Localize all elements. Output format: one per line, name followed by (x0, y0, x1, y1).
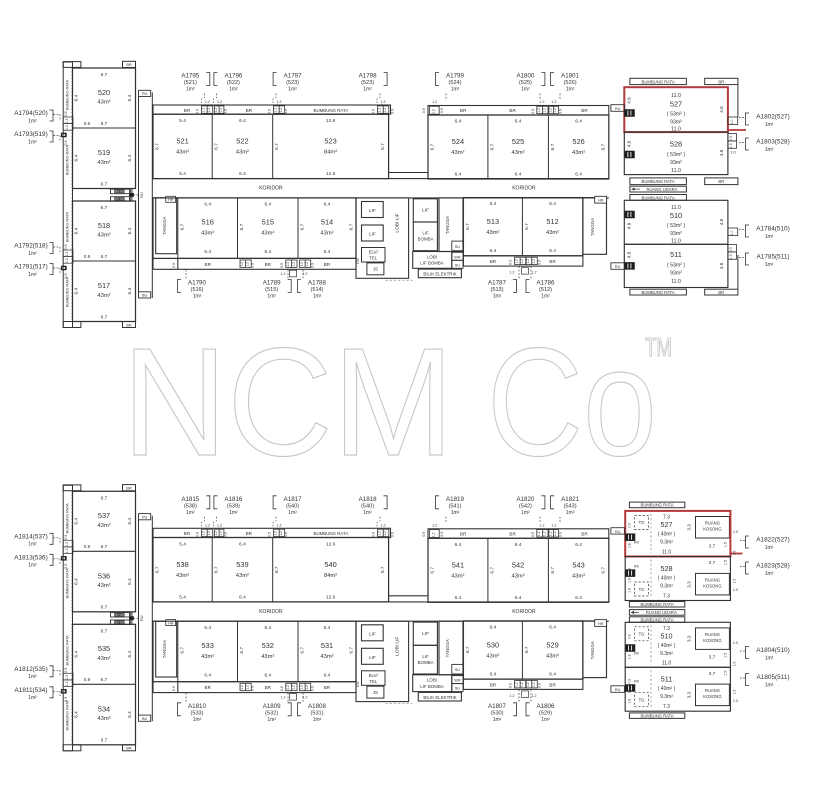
svg-text:6.4: 6.4 (264, 625, 271, 631)
svg-text:6.7: 6.7 (465, 646, 471, 653)
svg-text:1.2: 1.2 (432, 100, 437, 104)
svg-text:43m²: 43m² (451, 150, 464, 156)
svg-text:0.9: 0.9 (64, 697, 68, 702)
svg-text:1.2: 1.2 (553, 108, 557, 113)
svg-text:BILIK ELEKTRIK: BILIK ELEKTRIK (423, 272, 456, 277)
svg-text:TEL: TEL (369, 679, 378, 684)
svg-text:(515): (515) (265, 287, 278, 293)
svg-text:LIF: LIF (369, 655, 376, 661)
svg-text:1.2: 1.2 (542, 531, 546, 536)
svg-text:WR: WR (454, 255, 461, 259)
svg-text:1m²: 1m² (765, 262, 774, 268)
svg-text:1m²: 1m² (541, 294, 550, 300)
svg-text:Co: Co (487, 316, 657, 488)
svg-text:A1813(536): A1813(536) (14, 554, 47, 561)
svg-text:6.7: 6.7 (214, 143, 220, 150)
svg-text:512: 512 (546, 217, 558, 226)
svg-text:4.8: 4.8 (627, 97, 632, 104)
svg-text:43m²: 43m² (201, 231, 214, 237)
svg-text:1m²: 1m² (765, 122, 774, 128)
svg-text:43m²: 43m² (486, 230, 499, 236)
svg-text:524: 524 (452, 137, 464, 146)
svg-text:5.4: 5.4 (179, 594, 186, 600)
svg-text:A1809: A1809 (263, 703, 281, 710)
svg-text:(540): (540) (361, 503, 374, 509)
svg-text:43m²: 43m² (97, 233, 110, 239)
svg-text:11.0: 11.0 (671, 93, 681, 99)
svg-text:1.2: 1.2 (291, 262, 295, 267)
svg-text:1m²: 1m² (765, 682, 774, 688)
svg-text:525: 525 (512, 137, 524, 146)
svg-text:6.7: 6.7 (101, 72, 108, 78)
svg-text:BUMBUNG RATA: BUMBUNG RATA (642, 195, 675, 200)
svg-text:6.4: 6.4 (324, 249, 331, 255)
svg-text:536: 536 (98, 571, 110, 580)
svg-text:4.8: 4.8 (719, 149, 724, 156)
svg-text:1.0: 1.0 (730, 150, 736, 155)
svg-text:1.2: 1.2 (515, 682, 519, 687)
svg-text:1.2: 1.2 (378, 108, 382, 113)
svg-text:6.4: 6.4 (127, 578, 133, 585)
svg-text:6.7: 6.7 (101, 544, 108, 550)
svg-text:BR: BR (246, 108, 253, 113)
svg-text:43m²: 43m² (176, 150, 189, 156)
svg-text:RUANG: RUANG (705, 578, 720, 583)
svg-text:0.9: 0.9 (422, 532, 426, 537)
svg-text:A1817: A1817 (284, 496, 302, 503)
svg-text:1.2: 1.2 (552, 523, 557, 527)
svg-text:6.4: 6.4 (575, 172, 582, 178)
svg-text:531: 531 (321, 641, 333, 650)
svg-text:6.4: 6.4 (127, 518, 133, 525)
svg-text:6.7: 6.7 (155, 143, 161, 150)
svg-text:1m²: 1m² (193, 717, 202, 723)
svg-text:LIF BOMBA: LIF BOMBA (420, 684, 443, 689)
svg-text:6.4: 6.4 (515, 595, 522, 601)
svg-text:( 53m² ): ( 53m² ) (667, 152, 685, 158)
svg-text:1.5: 1.5 (724, 560, 728, 565)
svg-text:1.5: 1.5 (729, 247, 733, 252)
svg-text:6.4: 6.4 (74, 227, 80, 234)
svg-text:6.4: 6.4 (239, 118, 246, 124)
svg-text:0.9: 0.9 (628, 634, 632, 639)
svg-text:1.2: 1.2 (205, 100, 210, 104)
svg-text:3.3: 3.3 (687, 581, 692, 588)
svg-text:(541): (541) (448, 503, 461, 509)
svg-text:6.4: 6.4 (455, 119, 462, 125)
svg-text:1m²: 1m² (267, 717, 276, 723)
svg-text:1.2: 1.2 (305, 262, 309, 267)
svg-text:0.9: 0.9 (64, 274, 68, 279)
svg-text:11.0: 11.0 (671, 239, 681, 245)
svg-text:6.7: 6.7 (550, 143, 556, 150)
svg-text:1m²: 1m² (229, 510, 238, 516)
svg-text:542: 542 (512, 560, 524, 569)
svg-text:1.2: 1.2 (279, 108, 283, 113)
svg-text:BUMBUNG RATA: BUMBUNG RATA (641, 713, 674, 718)
svg-text:(539): (539) (227, 503, 240, 509)
svg-text:A1808: A1808 (308, 703, 326, 710)
svg-text:6.7: 6.7 (179, 223, 185, 230)
svg-text:1.2: 1.2 (432, 109, 436, 114)
svg-text:1.2: 1.2 (207, 108, 211, 113)
svg-text:93m²: 93m² (670, 160, 682, 166)
svg-text:1.2: 1.2 (381, 523, 386, 527)
svg-text:7.3: 7.3 (663, 594, 670, 600)
svg-text:1.2: 1.2 (217, 100, 222, 104)
svg-text:0.9: 0.9 (440, 108, 444, 113)
svg-text:43m²: 43m² (176, 573, 189, 579)
svg-text:1m²: 1m² (451, 510, 460, 516)
svg-text:KOSONG: KOSONG (703, 694, 721, 699)
svg-text:43m²: 43m² (97, 583, 110, 589)
svg-text:1.2: 1.2 (548, 108, 552, 113)
svg-text:BILIK ELEKTRIK: BILIK ELEKTRIK (423, 695, 456, 700)
svg-text:1m²: 1m² (521, 510, 530, 516)
svg-text:BUMBUNG RATA: BUMBUNG RATA (65, 277, 69, 307)
svg-text:BUMBUNG RATA: BUMBUNG RATA (65, 568, 69, 598)
svg-text:0.9: 0.9 (84, 121, 91, 126)
svg-text:1m²: 1m² (28, 695, 37, 701)
svg-text:3.3: 3.3 (687, 692, 692, 699)
svg-text:1.2: 1.2 (540, 523, 545, 527)
svg-text:520: 520 (98, 88, 110, 97)
svg-text:11.0: 11.0 (662, 661, 672, 667)
svg-text:6.4: 6.4 (324, 672, 331, 678)
svg-text:(524): (524) (448, 80, 461, 86)
svg-text:1m²: 1m² (28, 272, 37, 278)
svg-text:43m²: 43m² (511, 573, 524, 579)
svg-text:A1803(528): A1803(528) (756, 139, 789, 146)
svg-text:LIF BOMBA: LIF BOMBA (420, 261, 443, 266)
svg-text:1.2: 1.2 (383, 531, 387, 536)
svg-text:1.2: 1.2 (214, 108, 218, 113)
svg-text:43m²: 43m² (546, 653, 559, 659)
svg-text:BR: BR (549, 259, 556, 264)
svg-text:43m²: 43m² (572, 573, 585, 579)
svg-text:1.2: 1.2 (277, 523, 282, 527)
svg-text:A1794(520): A1794(520) (14, 110, 47, 117)
svg-text:43m²: 43m² (320, 231, 333, 237)
svg-text:LIF: LIF (369, 208, 376, 214)
svg-text:A1804(510): A1804(510) (756, 647, 789, 654)
svg-text:6.4: 6.4 (127, 711, 133, 718)
svg-text:A1816: A1816 (224, 496, 242, 503)
svg-text:6.7: 6.7 (274, 143, 280, 150)
svg-text:A1815: A1815 (181, 496, 199, 503)
svg-text:43m²: 43m² (486, 653, 499, 659)
svg-text:A1807: A1807 (488, 703, 506, 710)
svg-text:NCM: NCM (122, 316, 454, 488)
svg-text:A1822(527): A1822(527) (756, 537, 789, 544)
svg-text:1m²: 1m² (267, 294, 276, 300)
svg-text:1m²: 1m² (566, 87, 575, 93)
svg-text:A1821: A1821 (561, 496, 579, 503)
svg-text:1m²: 1m² (28, 118, 37, 124)
svg-text:1.2: 1.2 (510, 694, 515, 698)
svg-text:1.2: 1.2 (532, 682, 536, 687)
svg-text:1.2: 1.2 (65, 258, 69, 263)
svg-text:RUANG: RUANG (705, 632, 720, 637)
svg-text:BR: BR (509, 531, 516, 536)
svg-text:6.7: 6.7 (274, 566, 280, 573)
svg-text:CW: CW (356, 257, 360, 263)
svg-text:43m²: 43m² (97, 523, 110, 529)
svg-text:511: 511 (670, 250, 682, 259)
svg-text:BR: BR (460, 531, 467, 536)
svg-text:( 40m² ): ( 40m² ) (658, 532, 676, 538)
svg-text:TG: TG (639, 631, 645, 636)
svg-text:1m²: 1m² (28, 139, 37, 145)
svg-text:A1796: A1796 (224, 73, 242, 80)
svg-text:1.2: 1.2 (281, 695, 286, 699)
svg-text:6.4: 6.4 (455, 595, 462, 601)
svg-text:6.7: 6.7 (155, 566, 161, 573)
svg-text:1m²: 1m² (521, 87, 530, 93)
svg-text:3.7: 3.7 (709, 654, 716, 660)
svg-text:6.7: 6.7 (214, 566, 220, 573)
svg-text:1.8: 1.8 (628, 543, 632, 548)
svg-text:6.4: 6.4 (127, 94, 133, 101)
svg-text:538: 538 (176, 560, 188, 569)
svg-text:1.3: 1.3 (729, 143, 733, 148)
svg-text:6.7: 6.7 (430, 567, 436, 574)
svg-text:6.4: 6.4 (74, 518, 80, 525)
svg-text:BR: BR (205, 685, 212, 690)
svg-text:1m²: 1m² (28, 251, 37, 257)
svg-text:(538): (538) (184, 503, 197, 509)
svg-text:RU: RU (615, 107, 621, 111)
svg-text:6.7: 6.7 (101, 254, 108, 260)
svg-text:1.8: 1.8 (628, 654, 632, 659)
svg-text:3.7: 3.7 (709, 671, 716, 677)
svg-text:6.7: 6.7 (430, 143, 436, 150)
svg-text:BR: BR (184, 531, 191, 536)
svg-text:43m²: 43m² (97, 100, 110, 106)
svg-text:JS: JS (373, 690, 378, 695)
svg-text:6.7: 6.7 (550, 567, 556, 574)
svg-text:RUANG UDARA: RUANG UDARA (646, 610, 677, 615)
svg-text:A1806: A1806 (537, 703, 555, 710)
svg-text:522: 522 (236, 137, 248, 146)
svg-text:0.9: 0.9 (64, 112, 68, 117)
svg-text:515: 515 (262, 218, 274, 227)
svg-text:43m²: 43m² (97, 656, 110, 662)
svg-text:1.2: 1.2 (286, 262, 290, 267)
svg-text:BR: BR (718, 290, 724, 295)
svg-text:1.2: 1.2 (548, 531, 552, 536)
svg-text:6.4: 6.4 (324, 202, 331, 208)
svg-text:0.9: 0.9 (559, 109, 563, 114)
svg-text:WR: WR (454, 679, 461, 683)
svg-text:BR: BR (324, 262, 331, 267)
svg-text:1.2: 1.2 (542, 108, 546, 113)
svg-text:0.9: 0.9 (391, 109, 395, 114)
svg-text:BUMBUNG RATA: BUMBUNG RATA (65, 80, 69, 110)
svg-text:BR: BR (490, 259, 497, 264)
svg-text:A1799: A1799 (446, 73, 464, 80)
svg-text:11.0: 11.0 (671, 168, 681, 174)
svg-text:6.4: 6.4 (264, 672, 271, 678)
svg-text:BOMBA: BOMBA (418, 660, 434, 665)
svg-text:TANGGA: TANGGA (162, 640, 167, 658)
svg-text:1.2: 1.2 (383, 108, 387, 113)
svg-text:1.2: 1.2 (432, 523, 437, 527)
svg-text:BR: BR (581, 531, 588, 536)
svg-text:BUMBUNG RATA: BUMBUNG RATA (642, 79, 675, 84)
svg-text:1.2: 1.2 (532, 259, 536, 264)
svg-text:RUANG: RUANG (705, 520, 720, 525)
svg-text:0.9: 0.9 (251, 263, 255, 268)
svg-text:A1823(528): A1823(528) (756, 563, 789, 570)
svg-text:6.4: 6.4 (239, 594, 246, 600)
svg-text:43m²: 43m² (261, 654, 274, 660)
svg-text:0.5: 0.5 (268, 109, 272, 114)
svg-text:(540): (540) (286, 503, 299, 509)
svg-text:6.4: 6.4 (549, 671, 556, 677)
svg-text:0.9: 0.9 (84, 677, 91, 682)
svg-text:BUMBUNG RATA: BUMBUNG RATA (314, 108, 349, 113)
svg-text:1.2: 1.2 (214, 531, 218, 536)
svg-text:A1795: A1795 (181, 73, 199, 80)
svg-text:1.2: 1.2 (526, 259, 530, 264)
svg-text:0.9: 0.9 (84, 544, 91, 549)
svg-text:BUMBUNG RATA: BUMBUNG RATA (65, 700, 69, 730)
svg-text:A1820: A1820 (516, 496, 534, 503)
svg-text:528: 528 (661, 564, 673, 573)
svg-text:6.4: 6.4 (239, 171, 246, 177)
svg-text:12.6: 12.6 (326, 118, 336, 124)
svg-text:1m²: 1m² (313, 717, 322, 723)
svg-text:A1814(537): A1814(537) (14, 533, 47, 540)
svg-text:6.4: 6.4 (204, 249, 211, 255)
svg-text:(522): (522) (227, 80, 240, 86)
svg-text:84m²: 84m² (324, 573, 337, 579)
svg-text:(543): (543) (564, 503, 577, 509)
svg-text:A1786: A1786 (537, 280, 555, 287)
svg-text:( 53m² ): ( 53m² ) (667, 263, 685, 269)
svg-text:1m²: 1m² (493, 717, 502, 723)
svg-text:6.7: 6.7 (101, 605, 108, 611)
svg-text:6.7: 6.7 (300, 647, 306, 654)
svg-text:0.9: 0.9 (64, 564, 68, 569)
svg-text:11.0: 11.0 (662, 550, 672, 556)
svg-text:0.9: 0.9 (64, 141, 68, 146)
svg-text:KOSONG: KOSONG (703, 584, 721, 589)
svg-text:6.7: 6.7 (101, 677, 108, 683)
svg-text:LOBI: LOBI (427, 678, 437, 683)
svg-text:SU: SU (455, 668, 461, 672)
svg-text:527: 527 (670, 100, 682, 109)
svg-text:6.7: 6.7 (101, 628, 108, 634)
svg-text:LIF: LIF (422, 631, 429, 637)
svg-text:7.3: 7.3 (663, 704, 670, 710)
svg-text:6.4: 6.4 (239, 541, 246, 547)
svg-text:1.5: 1.5 (724, 653, 728, 658)
svg-text:6.4: 6.4 (74, 578, 80, 585)
svg-text:1m²: 1m² (28, 674, 37, 680)
svg-text:4.8: 4.8 (627, 222, 632, 229)
svg-text:1.5: 1.5 (733, 551, 737, 556)
svg-text:5.7: 5.7 (380, 143, 386, 150)
svg-text:0.9: 0.9 (64, 535, 68, 540)
svg-text:SU: SU (455, 687, 461, 691)
svg-text:BUMBUNG RATA: BUMBUNG RATA (642, 290, 675, 295)
svg-text:514: 514 (321, 218, 333, 227)
svg-text:BUMBUNG RATA: BUMBUNG RATA (65, 145, 69, 175)
svg-text:1.2: 1.2 (515, 259, 519, 264)
svg-text:6.4: 6.4 (127, 288, 133, 295)
svg-text:519: 519 (98, 148, 110, 157)
svg-text:1.2: 1.2 (553, 531, 557, 536)
svg-text:BR: BR (581, 108, 588, 113)
svg-text:LIF: LIF (422, 208, 429, 214)
svg-text:BR: BR (184, 108, 191, 113)
svg-text:43m²: 43m² (320, 654, 333, 660)
svg-text:6.7: 6.7 (300, 223, 306, 230)
svg-text:1m²: 1m² (186, 87, 195, 93)
svg-text:517: 517 (98, 281, 110, 290)
svg-text:BUMBUNG RATA: BUMBUNG RATA (65, 212, 69, 242)
svg-text:0.9: 0.9 (311, 686, 315, 691)
svg-text:1.5: 1.5 (724, 542, 728, 547)
svg-text:6.4: 6.4 (490, 671, 497, 677)
svg-text:A1810: A1810 (188, 703, 206, 710)
svg-text:6.4: 6.4 (324, 625, 331, 631)
svg-text:1.2: 1.2 (378, 531, 382, 536)
svg-text:1.3: 1.3 (65, 252, 69, 257)
svg-text:1.5: 1.5 (733, 662, 737, 667)
svg-text:11.0: 11.0 (671, 279, 681, 285)
svg-text:0.9: 0.9 (84, 254, 91, 259)
svg-text:6.4: 6.4 (490, 248, 497, 254)
svg-text:1m²: 1m² (541, 717, 550, 723)
svg-text:(523): (523) (361, 80, 374, 86)
svg-text:RUANG: RUANG (705, 688, 720, 693)
svg-text:A1793(519): A1793(519) (14, 131, 47, 138)
svg-text:BUMBUNG RATA: BUMBUNG RATA (65, 503, 69, 533)
svg-text:LOBI LIF: LOBI LIF (395, 213, 401, 232)
svg-text:6.4: 6.4 (74, 288, 80, 295)
svg-text:HR: HR (598, 622, 604, 626)
svg-text:1.0: 1.0 (733, 641, 738, 645)
svg-text:6.4: 6.4 (204, 625, 211, 631)
svg-text:1.2: 1.2 (219, 531, 223, 536)
svg-text:TG: TG (639, 520, 645, 525)
svg-text:( 40m² ): ( 40m² ) (658, 576, 676, 582)
svg-text:9.3m²: 9.3m² (660, 540, 673, 546)
svg-text:A1800: A1800 (516, 73, 534, 80)
svg-text:6.4: 6.4 (455, 172, 462, 178)
svg-text:1.2: 1.2 (246, 262, 250, 267)
svg-text:1m²: 1m² (451, 87, 460, 93)
svg-text:537: 537 (98, 511, 110, 520)
svg-text:BR: BR (265, 685, 272, 690)
svg-text:529: 529 (546, 640, 558, 649)
svg-text:1.0: 1.0 (733, 530, 738, 534)
svg-text:A1797: A1797 (284, 73, 302, 80)
svg-text:0.9: 0.9 (372, 532, 376, 537)
svg-text:TG: TG (639, 587, 645, 592)
svg-text:6.4: 6.4 (575, 542, 582, 548)
svg-text:BUMBUNG RATA: BUMBUNG RATA (641, 503, 674, 508)
svg-text:JS: JS (373, 267, 378, 272)
svg-text:RUANG UDARA: RUANG UDARA (647, 187, 678, 192)
svg-text:0.9: 0.9 (440, 532, 444, 537)
svg-text:6.7: 6.7 (101, 181, 108, 187)
svg-text:0.5: 0.5 (531, 109, 535, 114)
svg-text:43m²: 43m² (201, 654, 214, 660)
